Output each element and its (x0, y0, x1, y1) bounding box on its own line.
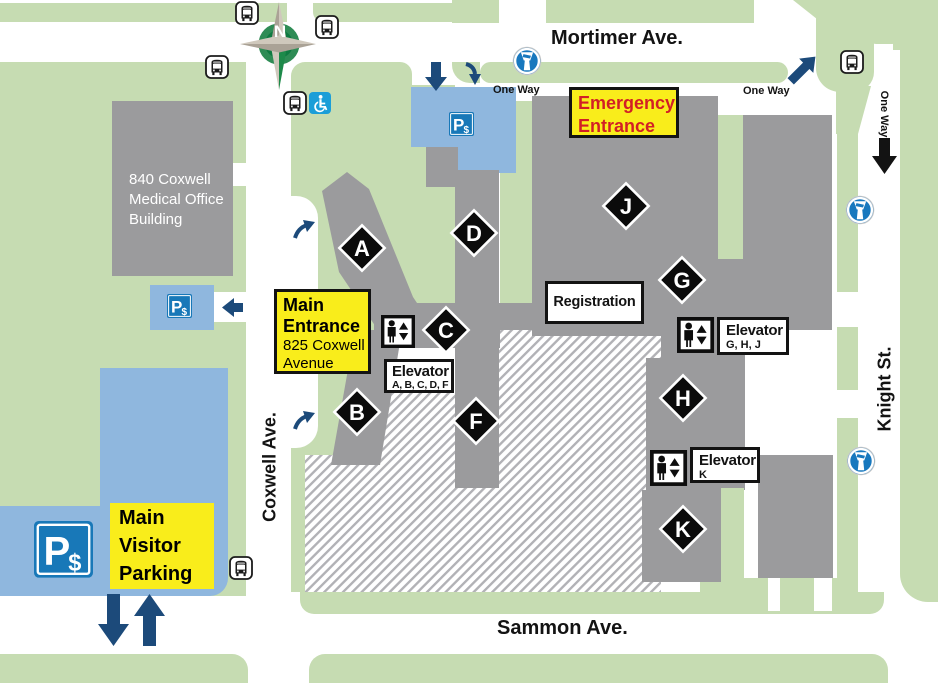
svg-text:G: G (673, 268, 690, 293)
svg-text:N: N (274, 22, 286, 41)
svg-text:H: H (675, 386, 691, 411)
svg-text:K: K (675, 517, 691, 542)
svg-text:A: A (354, 236, 370, 261)
svg-text:D: D (466, 221, 482, 246)
svg-text:F: F (469, 409, 482, 434)
svg-text:B: B (349, 400, 365, 425)
svg-text:J: J (620, 194, 632, 219)
svg-text:C: C (438, 318, 454, 343)
